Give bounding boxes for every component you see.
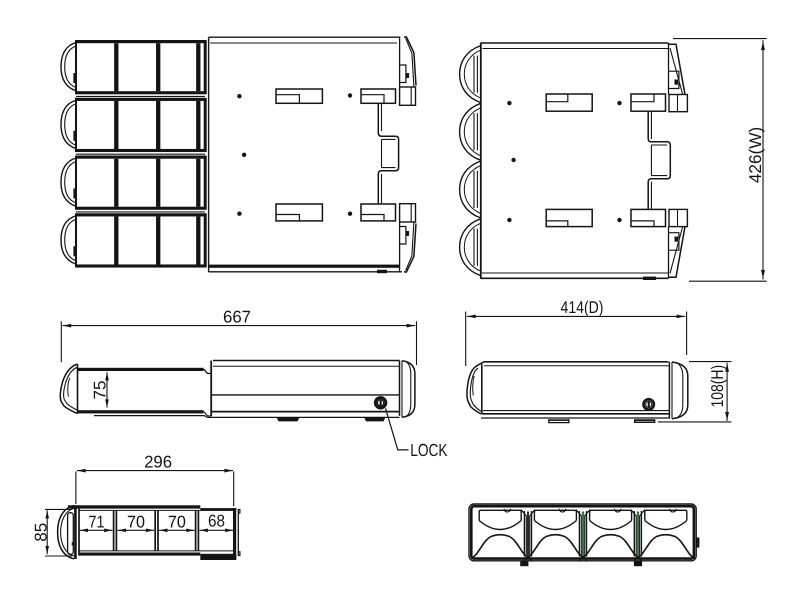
svg-text:LOCK: LOCK xyxy=(410,440,447,460)
svg-text:108(H): 108(H) xyxy=(708,365,727,408)
svg-text:667: 667 xyxy=(223,308,251,327)
svg-text:70: 70 xyxy=(127,513,145,532)
svg-text:68: 68 xyxy=(208,512,225,531)
svg-text:296: 296 xyxy=(144,453,172,472)
svg-text:75: 75 xyxy=(90,381,109,400)
svg-text:85: 85 xyxy=(31,523,50,542)
svg-text:70: 70 xyxy=(168,513,186,532)
svg-text:426(W): 426(W) xyxy=(746,127,765,183)
svg-text:71: 71 xyxy=(89,513,105,532)
svg-text:414(D): 414(D) xyxy=(561,298,604,317)
